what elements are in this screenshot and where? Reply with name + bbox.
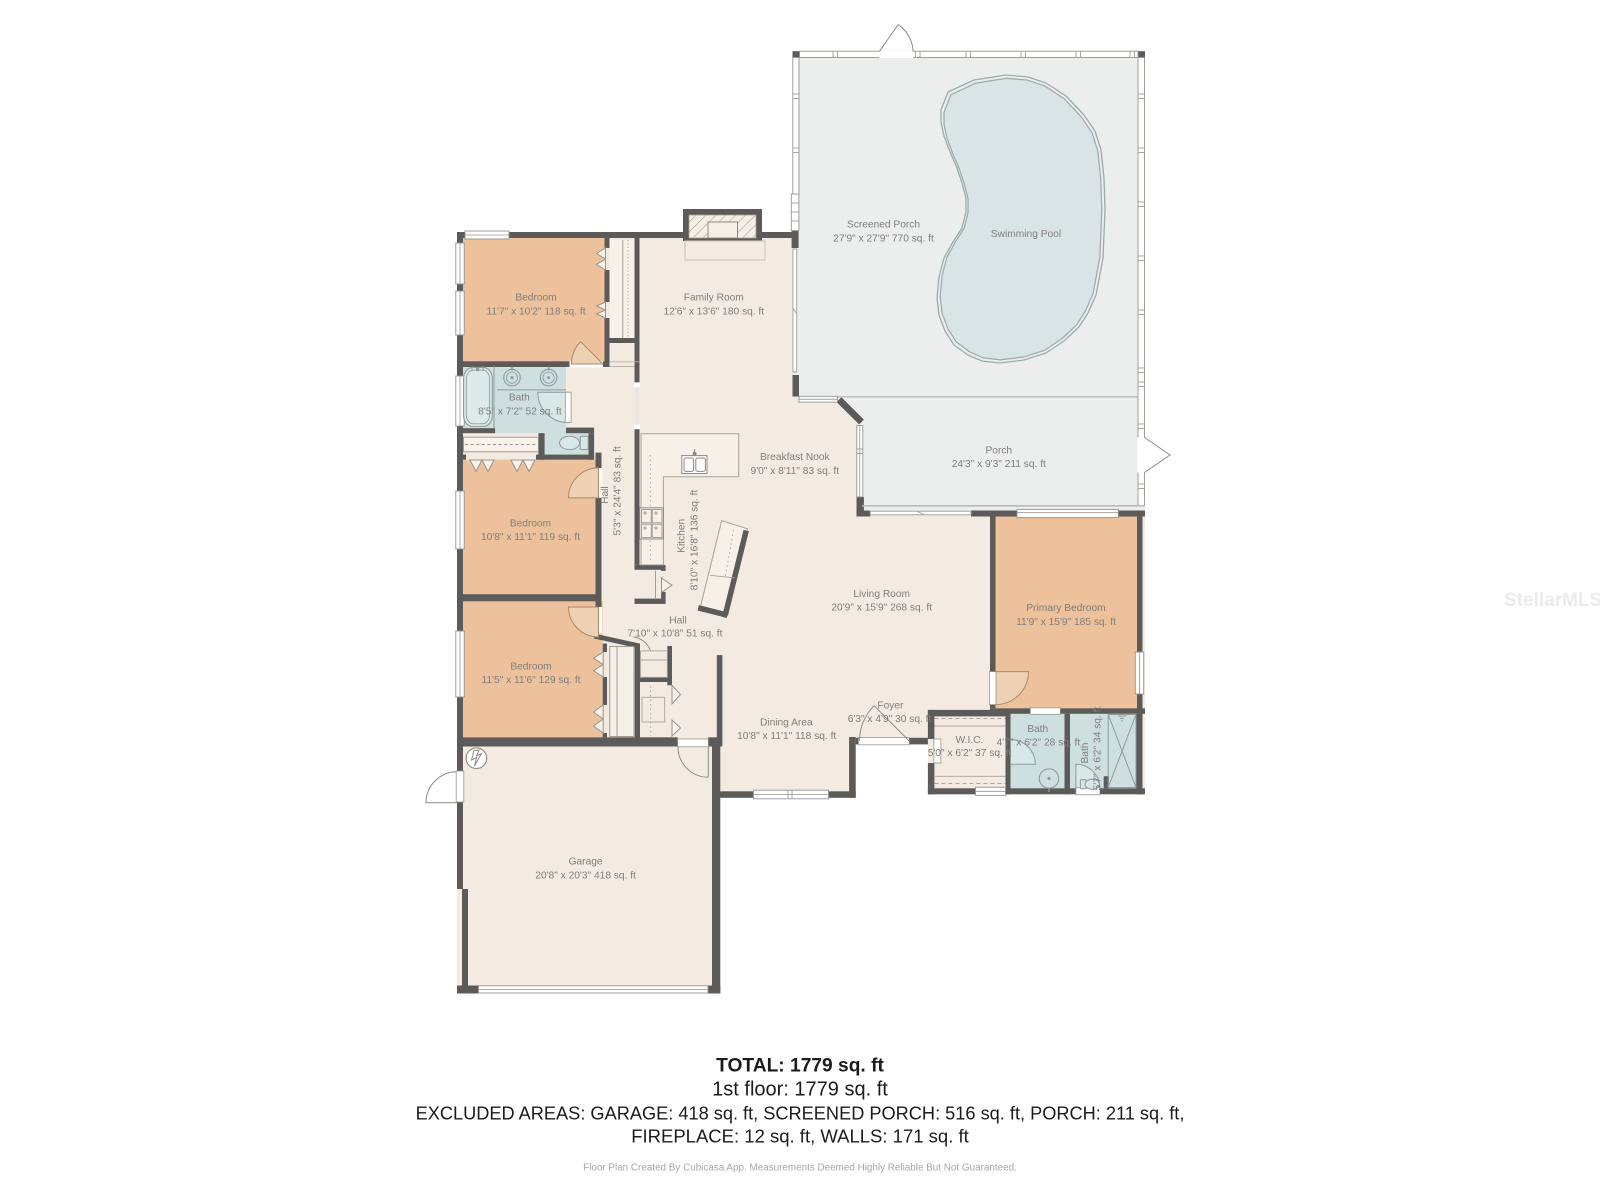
svg-text:Garage: Garage (569, 857, 603, 868)
svg-text:Porch: Porch (985, 446, 1012, 457)
svg-text:TOTAL: 1779 sq. ft: TOTAL: 1779 sq. ft (716, 1056, 884, 1077)
svg-text:Family Room: Family Room (684, 293, 744, 304)
svg-text:Dining Area: Dining Area (760, 718, 813, 729)
svg-text:1st floor: 1779 sq. ft: 1st floor: 1779 sq. ft (712, 1079, 888, 1101)
svg-text:12'6" x 13'6" 180 sq. ft: 12'6" x 13'6" 180 sq. ft (663, 307, 764, 318)
svg-text:FIREPLACE: 12 sq. ft, WALLS: 1: FIREPLACE: 12 sq. ft, WALLS: 171 sq. ft (631, 1126, 969, 1147)
svg-text:5'7" x 6'2" 34 sq. ft: 5'7" x 6'2" 34 sq. ft (1093, 707, 1104, 791)
svg-text:Bath: Bath (1027, 724, 1048, 735)
svg-text:StellarMLS: StellarMLS (1504, 590, 1600, 611)
svg-text:Hall: Hall (669, 616, 687, 627)
svg-text:11'5" x 11'6" 129 sq. ft: 11'5" x 11'6" 129 sq. ft (481, 675, 580, 686)
svg-text:24'3" x 9'3" 211 sq. ft: 24'3" x 9'3" 211 sq. ft (952, 459, 1046, 470)
svg-text:9'0" x 8'11" 83 sq. ft: 9'0" x 8'11" 83 sq. ft (751, 466, 840, 477)
svg-text:W.I.C.: W.I.C. (956, 735, 984, 746)
svg-text:20'8" x 20'3" 418 sq. ft: 20'8" x 20'3" 418 sq. ft (535, 871, 636, 882)
svg-text:8'10" x 16'8" 136 sq. ft: 8'10" x 16'8" 136 sq. ft (689, 490, 700, 591)
svg-text:10'8" x 11'1" 119 sq. ft: 10'8" x 11'1" 119 sq. ft (481, 532, 580, 543)
svg-text:Bath: Bath (1080, 743, 1091, 764)
svg-text:Breakfast Nook: Breakfast Nook (760, 452, 831, 463)
svg-text:Swimming Pool: Swimming Pool (991, 229, 1061, 240)
svg-text:10'8" x 11'1" 118 sq. ft: 10'8" x 11'1" 118 sq. ft (737, 731, 836, 742)
svg-text:Kitchen: Kitchen (676, 519, 687, 553)
svg-text:7'10" x 10'8" 51 sq. ft: 7'10" x 10'8" 51 sq. ft (628, 629, 723, 640)
svg-text:Primary Bedroom: Primary Bedroom (1026, 603, 1105, 614)
svg-text:Living Room: Living Room (853, 589, 910, 600)
svg-text:20'9" x 15'9" 268 sq. ft: 20'9" x 15'9" 268 sq. ft (831, 603, 932, 614)
svg-text:Bedroom: Bedroom (510, 662, 551, 673)
svg-text:Screened Porch: Screened Porch (847, 220, 920, 231)
svg-text:27'9" x 27'9" 770 sq. ft: 27'9" x 27'9" 770 sq. ft (833, 234, 934, 245)
svg-text:4'7" x 6'2" 28 sq. ft: 4'7" x 6'2" 28 sq. ft (997, 738, 1081, 749)
svg-text:6'3" x 4'9" 30 sq. ft: 6'3" x 4'9" 30 sq. ft (848, 714, 932, 725)
svg-text:Hall: Hall (600, 486, 611, 504)
svg-text:Bedroom: Bedroom (510, 518, 551, 529)
svg-text:Bedroom: Bedroom (515, 292, 556, 303)
svg-text:Foyer: Foyer (877, 701, 904, 712)
svg-text:Floor Plan Created By Cubicasa: Floor Plan Created By Cubicasa App. Meas… (583, 1163, 1017, 1174)
svg-text:5'3" x 24'4" 83 sq. ft: 5'3" x 24'4" 83 sq. ft (613, 446, 624, 535)
svg-text:8'5" x 7'2" 52 sq. ft: 8'5" x 7'2" 52 sq. ft (478, 407, 562, 418)
svg-text:11'9" x 15'9" 185 sq. ft: 11'9" x 15'9" 185 sq. ft (1016, 617, 1116, 628)
svg-text:Bath: Bath (509, 393, 530, 404)
svg-text:EXCLUDED AREAS: GARAGE: 418 sq: EXCLUDED AREAS: GARAGE: 418 sq. ft, SCRE… (416, 1104, 1185, 1124)
svg-text:11'7" x 10'2" 118 sq. ft: 11'7" x 10'2" 118 sq. ft (486, 306, 585, 317)
svg-text:5'0" x 6'2" 37 sq. ft: 5'0" x 6'2" 37 sq. ft (928, 748, 1012, 759)
